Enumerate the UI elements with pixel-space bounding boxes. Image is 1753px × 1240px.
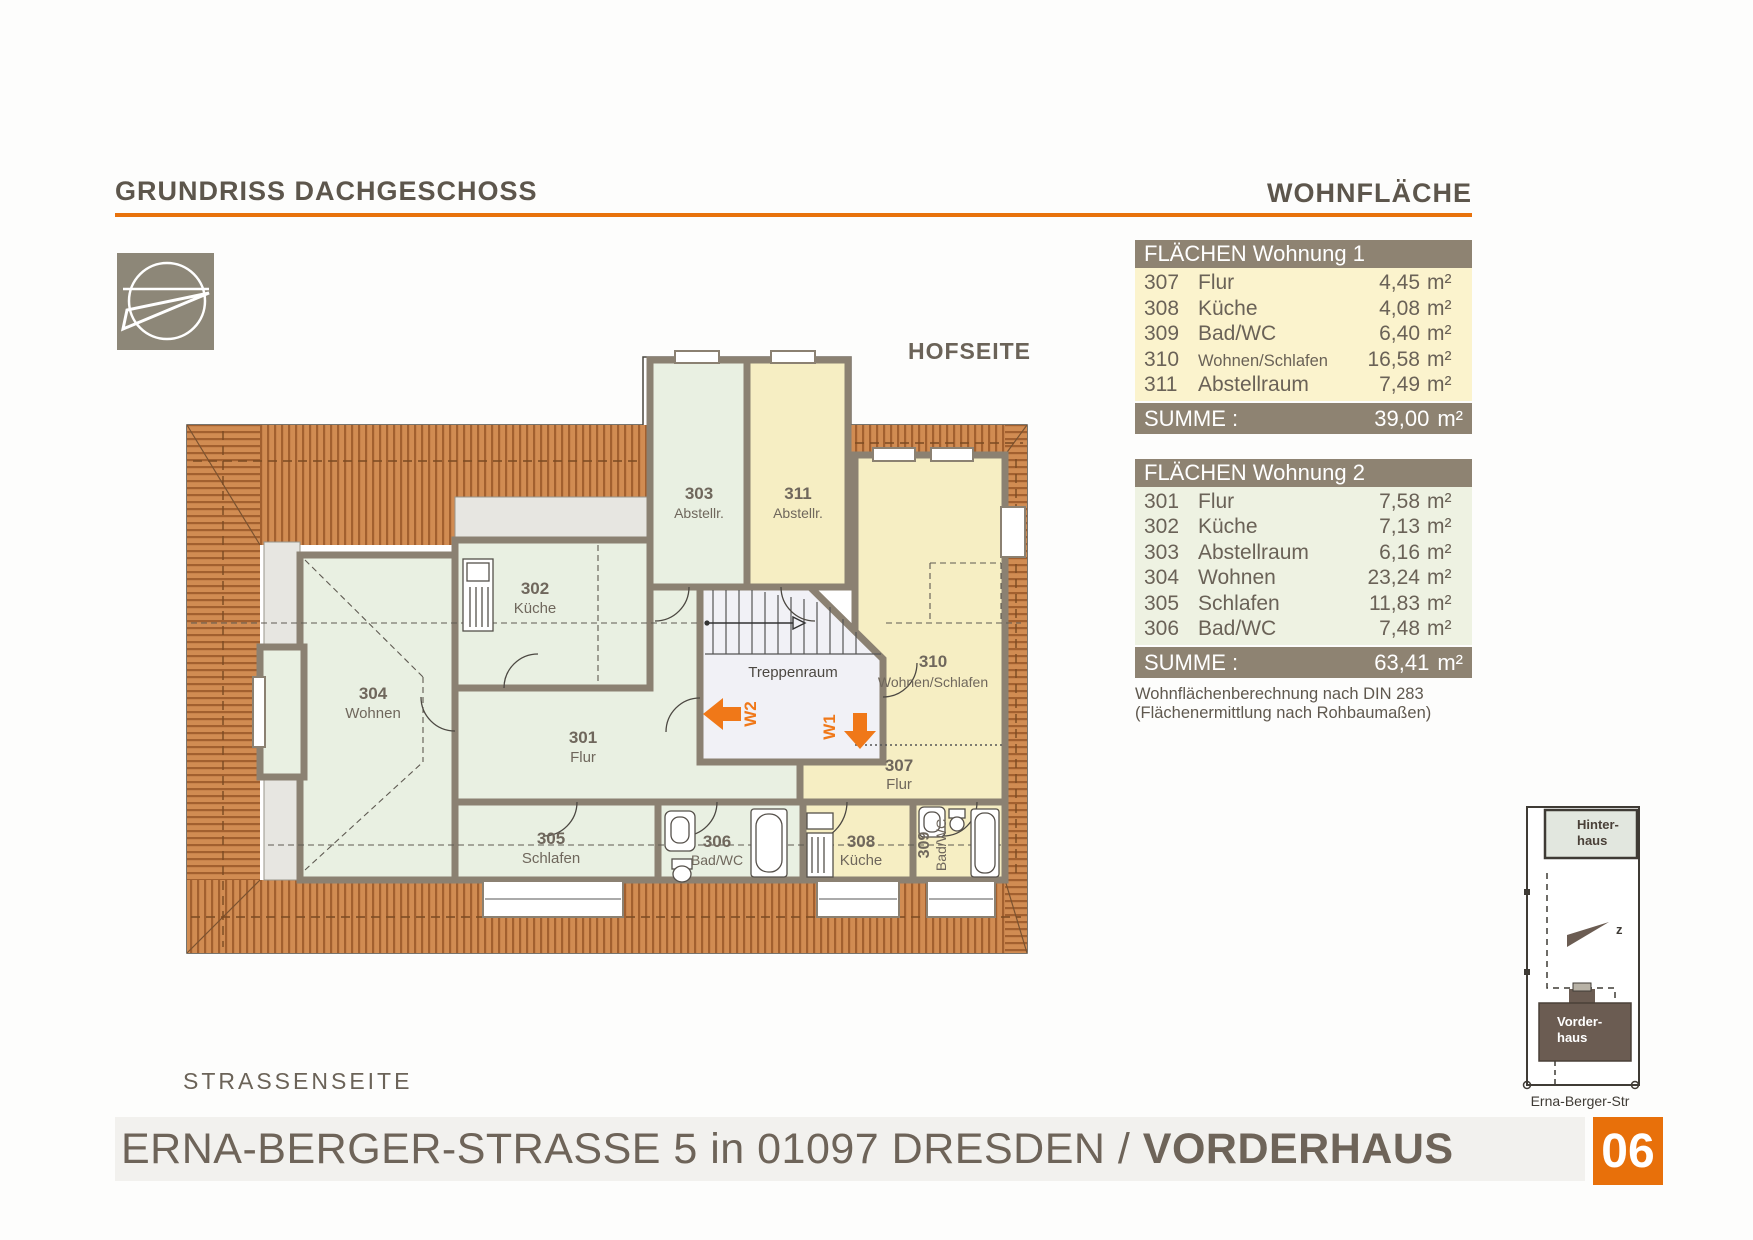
sink-icon <box>665 811 695 851</box>
architect-logo-icon <box>117 253 214 350</box>
room-306-number: 306 <box>703 832 731 851</box>
table-row: 305Schlafen11,83m² <box>1144 591 1463 617</box>
room-301-number: 301 <box>569 728 597 747</box>
page-title: GRUNDRISS DACHGESCHOSS <box>115 176 538 207</box>
entrance-w2-label: W2 <box>741 701 760 727</box>
terrace-strip <box>455 497 650 540</box>
treppenraum-label: Treppenraum <box>748 664 838 681</box>
floorplan-drawing: W2 W1 301 Flur 302 Küche 303 Abstellr. 3… <box>183 347 1031 959</box>
footer-address-bar: ERNA-BERGER-STRASSE 5 in 01097 DRESDEN /… <box>115 1117 1585 1181</box>
architect-logo-glyph <box>117 253 214 350</box>
vorderhaus-label-line2: haus <box>1557 1030 1587 1045</box>
hinterhaus-label-line1-pos-vorder: Vorder- <box>1557 1014 1602 1029</box>
table-row: 302Küche7,13m² <box>1144 514 1463 540</box>
room-311 <box>747 360 848 587</box>
table-wohnung2-rows: 301Flur7,58m² 302Küche7,13m² 303Abstellr… <box>1135 487 1472 645</box>
room-311-name: Abstellr. <box>773 505 823 521</box>
table-wohnung1-header: FLÄCHEN Wohnung 1 <box>1135 240 1472 268</box>
table-row: 303Abstellraum6,16m² <box>1144 540 1463 566</box>
room-303-number: 303 <box>685 484 713 503</box>
street-label: Erna-Berger-Str <box>1531 1093 1630 1109</box>
table-wohnung1-sum: SUMME : 39,00m² <box>1135 403 1472 434</box>
floorplan-sheet: GRUNDRISS DACHGESCHOSS WOHNFLÄCHE FLÄCHE… <box>0 0 1753 1240</box>
accent-rule <box>115 213 1472 217</box>
room-303-name: Abstellr. <box>674 505 724 521</box>
room-310-number: 310 <box>919 652 947 671</box>
footer-address-bold: VORDERHAUS <box>1143 1125 1454 1174</box>
table-row: 311Abstellraum7,49m² <box>1144 372 1463 398</box>
hinterhaus-label-line2: haus <box>1577 833 1607 848</box>
table-row: 304Wohnen23,24m² <box>1144 565 1463 591</box>
din-note: Wohnflächenberechnung nach DIN 283 (Fläc… <box>1135 685 1472 723</box>
room-309-name: Bad/WC <box>933 819 949 871</box>
room-302-number: 302 <box>521 579 549 598</box>
vorderhaus-stub-window <box>1573 983 1591 991</box>
table-row: 308Küche4,08m² <box>1144 296 1463 322</box>
table-wohnung2-sum: SUMME : 63,41m² <box>1135 647 1472 678</box>
room-306-name: Bad/WC <box>691 852 743 868</box>
room-308-number: 308 <box>847 832 875 851</box>
room-308-name: Küche <box>840 852 883 869</box>
table-row: 307Flur4,45m² <box>1144 270 1463 296</box>
hinterhaus-label-line1: Hinter- <box>1577 817 1619 832</box>
room-302-name: Küche <box>514 600 557 617</box>
room-304-name: Wohnen <box>345 705 401 722</box>
room-307-number: 307 <box>885 756 913 775</box>
strassenseite-label: STRASSENSEITE <box>183 1068 412 1095</box>
table-wohnung2-header: FLÄCHEN Wohnung 2 <box>1135 459 1472 487</box>
toilet-icon <box>672 859 692 882</box>
footer-address: ERNA-BERGER-STRASSE 5 in 01097 DRESDEN / <box>121 1125 1143 1174</box>
room-307-name: Flur <box>886 776 912 793</box>
room-305-name: Schlafen <box>522 850 580 867</box>
toilet-icon <box>949 809 965 831</box>
stove-icon <box>807 813 833 877</box>
wohnflaeche-heading: WOHNFLÄCHE <box>1135 178 1472 209</box>
table-row: 301Flur7,58m² <box>1144 489 1463 515</box>
room-310-name: Wohnen/Schlafen <box>878 674 988 690</box>
north-mark-label: z <box>1616 922 1623 937</box>
room-311-number: 311 <box>784 484 811 503</box>
room-305-number: 305 <box>537 829 565 848</box>
entrance-w1-label: W1 <box>820 714 839 740</box>
room-304-bay <box>260 647 304 777</box>
stove-icon <box>463 559 493 631</box>
table-wohnung1-rows: 307Flur4,45m² 308Küche4,08m² 309Bad/WC6,… <box>1135 268 1472 401</box>
area-tables: FLÄCHEN Wohnung 1 307Flur4,45m² 308Küche… <box>1135 240 1472 723</box>
table-row: 310Wohnen/Schlafen16,58m² <box>1144 347 1463 373</box>
site-map: z Vorder- haus Hinter- haus Erna-Berger-… <box>1517 803 1643 1113</box>
bathtub-icon <box>751 809 787 877</box>
bathtub-icon <box>971 809 999 877</box>
room-303 <box>650 360 747 587</box>
sheet-number-badge: 06 <box>1593 1117 1663 1185</box>
room-309-number: 309 <box>916 832 933 859</box>
room-304-number: 304 <box>359 684 388 703</box>
room-301-name: Flur <box>570 749 596 766</box>
table-row: 306Bad/WC7,48m² <box>1144 616 1463 642</box>
table-row: 309Bad/WC6,40m² <box>1144 321 1463 347</box>
